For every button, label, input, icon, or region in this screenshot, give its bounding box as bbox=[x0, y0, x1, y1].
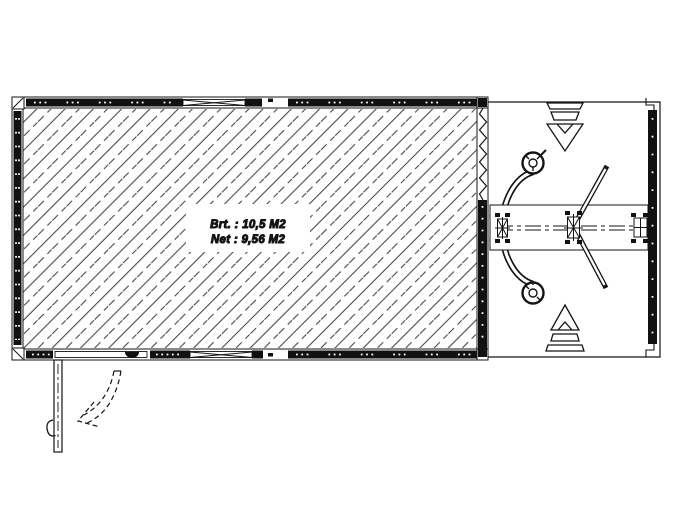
corner-joint-bottom-left bbox=[12, 348, 24, 360]
corner-step-top-right bbox=[646, 98, 654, 110]
door-swing-arrow-icon bbox=[78, 371, 121, 427]
direction-arrow-bottom-icon bbox=[546, 305, 584, 351]
wall-joint-top bbox=[262, 98, 288, 107]
direction-arrow-top-icon bbox=[547, 103, 583, 151]
area-label: Brt. : 10,5 M2 Net : 9,56 M2 bbox=[186, 204, 310, 252]
wall-top bbox=[12, 97, 488, 108]
net-area-text: Net : 9,56 M2 bbox=[211, 234, 286, 246]
wall-right-partition bbox=[477, 97, 488, 360]
corner-joint-top-left bbox=[12, 97, 24, 109]
deck bbox=[488, 98, 660, 357]
corner-step-bottom-right bbox=[646, 344, 654, 357]
deck-wall-right bbox=[648, 110, 657, 344]
wall-joint-bottom bbox=[263, 350, 288, 359]
room: Brt. : 10,5 M2 Net : 9,56 M2 bbox=[12, 97, 488, 360]
gross-area-text: Brt. : 10,5 M2 bbox=[210, 219, 286, 231]
door bbox=[47, 360, 121, 452]
floor-plan-drawing: Brt. : 10,5 M2 Net : 9,56 M2 bbox=[0, 0, 686, 515]
window-top-icon bbox=[183, 100, 245, 106]
partition-zigzag-icon bbox=[480, 108, 487, 200]
wall-bottom bbox=[12, 349, 488, 360]
hitch-eye-top-icon bbox=[523, 150, 547, 174]
hitch-eye-bottom-icon bbox=[523, 281, 544, 304]
wall-left bbox=[12, 97, 23, 360]
door-opening bbox=[55, 352, 147, 359]
window-bottom-icon bbox=[190, 352, 252, 358]
